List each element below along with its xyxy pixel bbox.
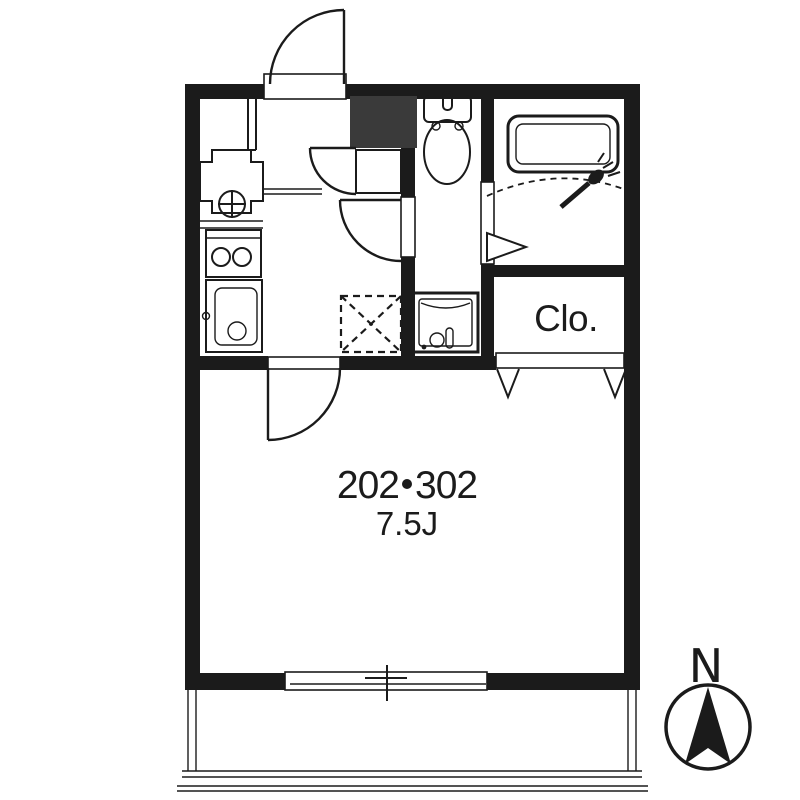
main-room-door-threshold <box>268 357 340 369</box>
unit-number-left: 202 <box>337 464 399 507</box>
wall-top-left <box>185 84 264 99</box>
washroom-left-wall-top <box>401 148 415 197</box>
bathroom-left-wall-bottom <box>481 264 494 370</box>
genkan-step-edge <box>263 189 322 194</box>
floor-plan-canvas: Clo. 202 302 7.5J N <box>0 0 800 800</box>
room-divider-wall-left <box>200 356 268 370</box>
refrigerator-space <box>341 296 401 352</box>
basin-drain-icon <box>430 333 444 347</box>
wall-right <box>624 84 640 690</box>
washing-machine-pan <box>200 150 263 218</box>
kitchen-sink <box>203 280 263 352</box>
entrance-threshold <box>264 74 346 99</box>
bathroom-bottom-wall <box>481 265 624 277</box>
wall-left <box>185 84 200 690</box>
closet-folding-door-mark <box>604 369 626 397</box>
closet-folding-door-mark <box>497 369 519 397</box>
unit-number-right: 302 <box>415 464 477 507</box>
toilet <box>424 92 471 184</box>
bathroom-door-swing-arc <box>487 178 626 196</box>
washroom-door <box>340 200 401 261</box>
kitchen-partition-stub <box>248 99 256 150</box>
washroom-door-swing-arc <box>340 200 401 261</box>
room-area-label: 7.5J <box>376 505 438 542</box>
cabinet-door-swing-arc <box>310 148 356 194</box>
shoe-cabinet <box>356 150 401 193</box>
kitchen-counter-edge <box>200 221 263 228</box>
drain-icon <box>228 322 246 340</box>
entrance-door-swing-arc <box>270 10 344 84</box>
wall-bottom-left <box>185 673 285 690</box>
balcony-railing <box>177 690 648 791</box>
washroom-door-opening <box>401 197 415 257</box>
bathroom-folding-door <box>487 178 626 261</box>
room-divider-wall-mid <box>340 356 496 370</box>
basin-faucet-icon <box>446 328 453 348</box>
unit-number-separator-dot <box>402 479 412 489</box>
bathroom-door-leaf <box>487 233 526 261</box>
main-room-door <box>268 368 340 440</box>
toilet-bowl <box>424 120 470 184</box>
burner-icon <box>233 248 251 266</box>
burner-icon <box>212 248 230 266</box>
bathroom-left-wall-top <box>481 99 494 182</box>
main-room-door-swing-arc <box>268 368 340 440</box>
north-compass: N <box>666 639 750 769</box>
basin-curve <box>421 303 470 308</box>
cabinet-door <box>310 148 356 194</box>
floor-plan-page: Clo. 202 302 7.5J N <box>0 0 800 800</box>
bathtub <box>508 116 618 172</box>
compass-needle-icon <box>685 687 731 764</box>
room-label: 202 302 7.5J <box>337 464 477 542</box>
shower-head-icon <box>561 153 620 207</box>
wall-bottom-right <box>487 673 640 690</box>
gas-stove <box>206 230 261 277</box>
entrance-door <box>270 10 344 84</box>
pipe-shaft <box>350 96 417 148</box>
wash-basin <box>413 293 478 352</box>
closet: Clo. <box>496 298 626 397</box>
closet-label: Clo. <box>534 298 598 339</box>
closet-threshold <box>496 353 624 368</box>
sliding-window <box>285 665 487 701</box>
